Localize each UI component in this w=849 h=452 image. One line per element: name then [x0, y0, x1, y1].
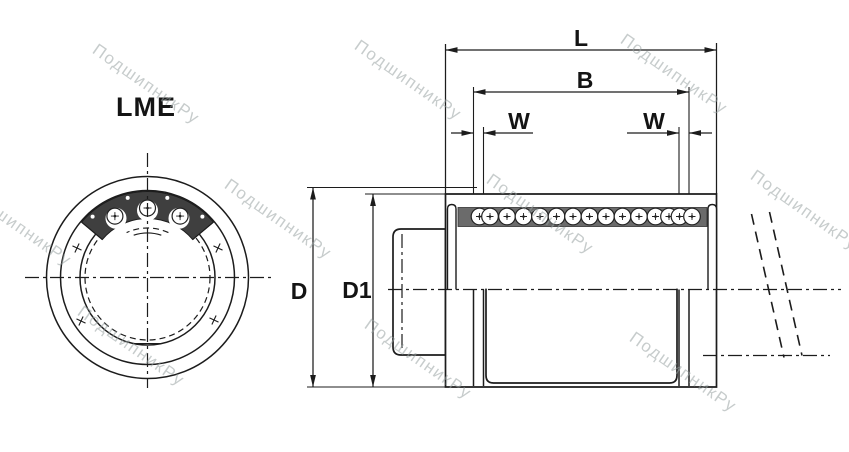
arrowhead — [705, 47, 717, 53]
ball — [588, 215, 591, 218]
retainer-dot — [126, 196, 130, 200]
track-mark — [207, 313, 220, 326]
side-view — [388, 194, 841, 387]
ball — [179, 215, 182, 218]
arrowhead — [689, 130, 701, 136]
ball — [522, 215, 525, 218]
retainer-dot — [91, 215, 95, 219]
arrowhead — [446, 47, 458, 53]
arrowhead — [370, 375, 376, 387]
technical-drawing: L B W W D D1 LME — [0, 0, 849, 452]
track-mark — [74, 314, 87, 327]
left-seal — [448, 205, 457, 290]
ball — [572, 215, 575, 218]
ball — [605, 215, 608, 218]
left-flange — [393, 229, 446, 355]
arrowhead — [667, 130, 679, 136]
ball — [621, 215, 624, 218]
arrowhead — [370, 194, 376, 206]
ball — [678, 215, 681, 218]
dim-label-D: D — [291, 278, 308, 304]
arrowhead — [310, 188, 316, 200]
bearing-drawing-page: L B W W D D1 LME ПодшипникРу ПодшипникРу… — [0, 0, 849, 452]
lower-sleeve — [486, 290, 677, 384]
break-line — [770, 212, 803, 356]
arrowhead — [310, 375, 316, 387]
retainer-dot — [200, 215, 204, 219]
dim-label-L: L — [574, 25, 588, 51]
arrowhead — [484, 130, 496, 136]
track-mark — [70, 241, 83, 254]
ball — [506, 215, 509, 218]
dim-label-W-right: W — [643, 108, 665, 134]
arrowhead — [474, 89, 486, 95]
track-mark — [211, 241, 224, 254]
dim-label-D1: D1 — [342, 277, 372, 303]
ball — [638, 215, 641, 218]
ball — [539, 215, 542, 218]
arrowhead — [462, 130, 474, 136]
arrowhead — [677, 89, 689, 95]
ball — [668, 215, 671, 218]
dim-label-W-left: W — [508, 108, 530, 134]
ball — [489, 215, 492, 218]
series-title: LME — [116, 92, 176, 122]
ball — [555, 215, 558, 218]
retainer-dot — [165, 196, 169, 200]
break-line — [752, 214, 785, 358]
side-view-balls — [471, 208, 700, 225]
front-view — [25, 153, 271, 388]
ball — [691, 215, 694, 218]
ball — [654, 215, 657, 218]
dim-label-B: B — [577, 67, 594, 93]
ball — [478, 215, 481, 218]
ball — [114, 215, 117, 218]
right-seal — [708, 205, 717, 290]
